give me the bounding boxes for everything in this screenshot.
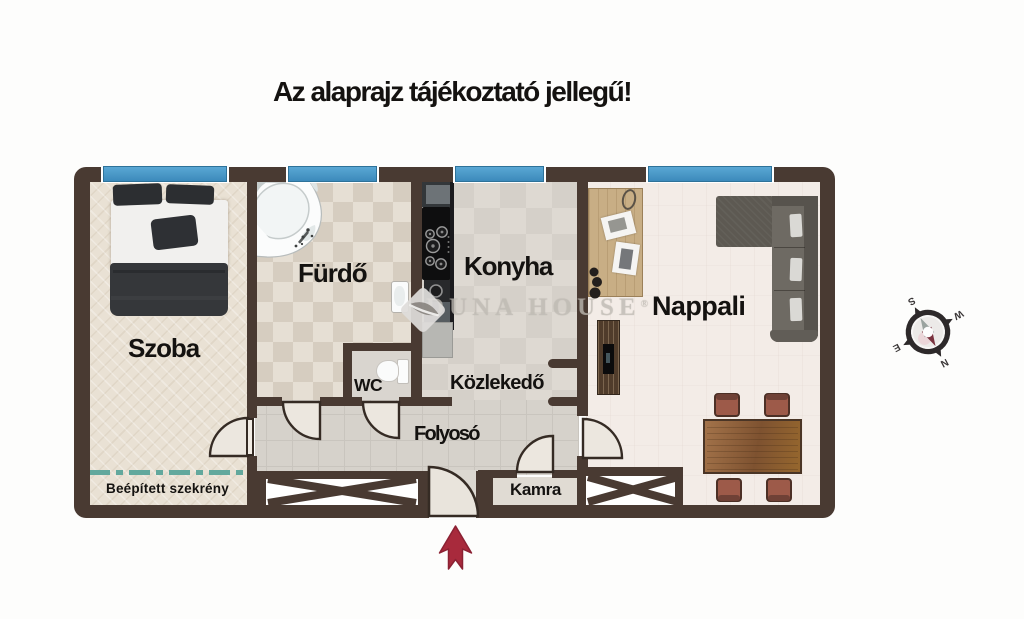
svg-text:E: E — [891, 341, 902, 354]
svg-text:S: S — [906, 294, 917, 307]
svg-text:N: N — [938, 356, 950, 369]
svg-text:W: W — [951, 307, 965, 321]
